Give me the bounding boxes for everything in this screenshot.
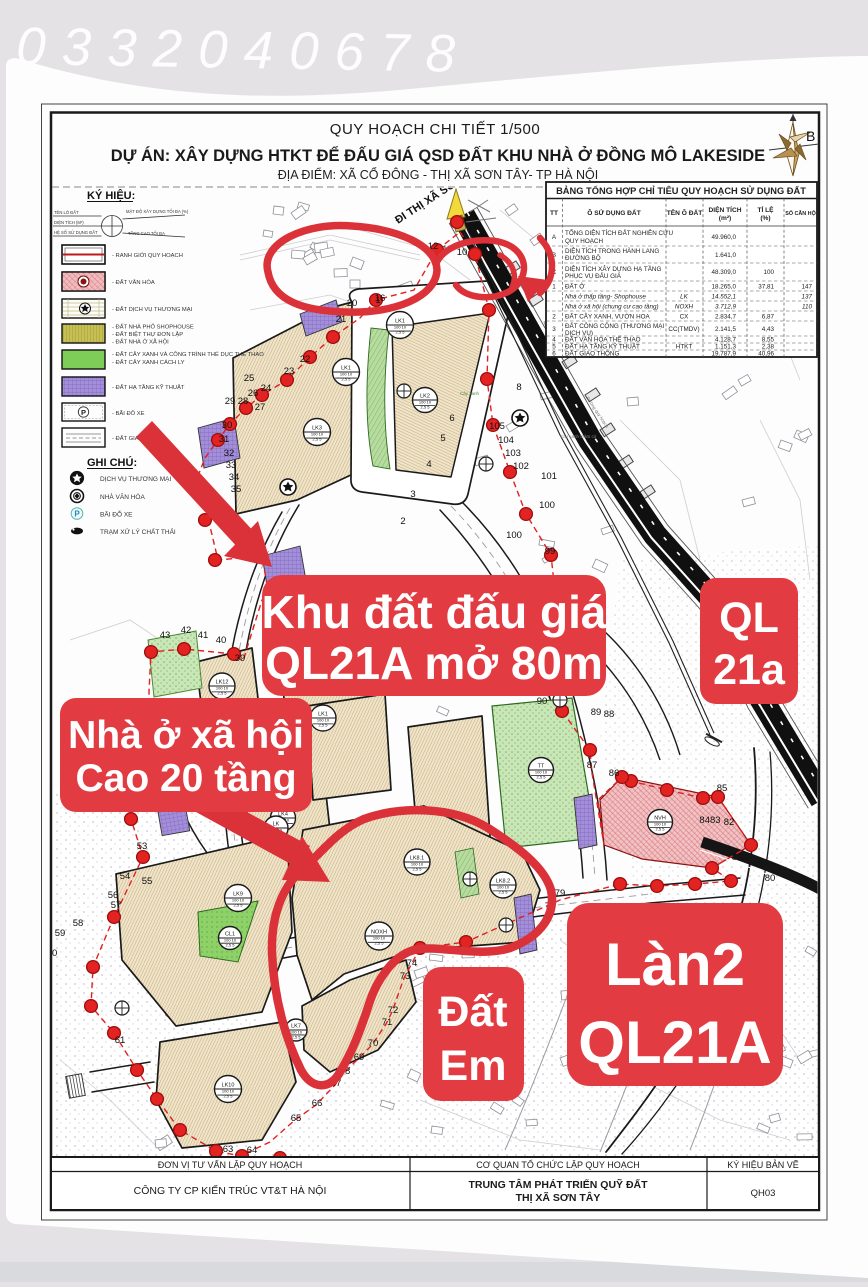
svg-text:27: 27 xyxy=(255,402,266,413)
svg-text:55: 55 xyxy=(142,876,153,887)
svg-text:HTKT: HTKT xyxy=(676,344,693,351)
svg-text:43: 43 xyxy=(160,630,171,641)
svg-text:39: 39 xyxy=(235,653,246,664)
svg-text:Nhà ở thấp tầng- Shophouse: Nhà ở thấp tầng- Shophouse xyxy=(565,292,646,301)
svg-text:5: 5 xyxy=(440,433,445,444)
svg-text:10: 10 xyxy=(457,247,468,258)
svg-text:CƠ QUAN TỔ CHỨC LẬP QUY HOẠCH: CƠ QUAN TỔ CHỨC LẬP QUY HOẠCH xyxy=(476,1159,639,1170)
svg-text:42: 42 xyxy=(181,625,192,636)
svg-text:14.552,1: 14.552,1 xyxy=(711,294,736,301)
svg-text:- ĐẤT VĂN HÓA: - ĐẤT VĂN HÓA xyxy=(112,279,155,286)
svg-text:HỆ SỐ SỬ DỤNG ĐẤT: HỆ SỐ SỬ DỤNG ĐẤT xyxy=(54,230,98,235)
svg-text:110: 110 xyxy=(802,304,813,311)
svg-text:8,55: 8,55 xyxy=(762,337,775,344)
svg-text:2,5 5: 2,5 5 xyxy=(342,377,352,382)
svg-text:2,5 5: 2,5 5 xyxy=(537,775,547,780)
svg-text:CC(TMDV): CC(TMDV) xyxy=(668,326,699,333)
svg-text:61: 61 xyxy=(115,1035,126,1046)
svg-text:THỊ XÃ SƠN TÂY: THỊ XÃ SƠN TÂY xyxy=(516,1191,601,1204)
svg-text:TỈ LỆ: TỈ LỆ xyxy=(757,205,774,214)
svg-text:100: 100 xyxy=(763,269,774,276)
svg-text:89: 89 xyxy=(591,707,602,718)
svg-text:ĐƯỜNG BỘ: ĐƯỜNG BỘ xyxy=(565,253,601,262)
svg-text:- ĐẤT CÂY XANH VÀ CÔNG TRÌNH T: - ĐẤT CÂY XANH VÀ CÔNG TRÌNH THỂ DỤC THỂ… xyxy=(112,351,264,358)
svg-text:35: 35 xyxy=(231,484,242,495)
svg-text:TẦNG CAO TỐI ĐA: TẦNG CAO TỐI ĐA xyxy=(128,231,165,236)
svg-text:41: 41 xyxy=(198,630,209,641)
svg-text:5: 5 xyxy=(552,344,556,351)
svg-text:2,5 5: 2,5 5 xyxy=(656,827,666,832)
svg-text:22: 22 xyxy=(300,354,311,365)
svg-text:4: 4 xyxy=(426,459,431,470)
svg-text:86: 86 xyxy=(609,768,620,779)
svg-text:Đất: Đất xyxy=(438,988,507,1036)
svg-text:DIỆN TÍCH: DIỆN TÍCH xyxy=(709,205,742,214)
svg-text:26: 26 xyxy=(248,388,259,399)
svg-text:- ĐẤT DỊCH VỤ THƯƠNG MẠI: - ĐẤT DỊCH VỤ THƯƠNG MẠI xyxy=(112,306,193,313)
svg-text:99: 99 xyxy=(545,546,556,557)
svg-text:59: 59 xyxy=(55,928,66,939)
svg-text:DIỆN TÍCH TRONG HÀNH LANG: DIỆN TÍCH TRONG HÀNH LANG xyxy=(565,246,659,255)
svg-text:Em: Em xyxy=(440,1042,507,1090)
svg-text:66: 66 xyxy=(312,1098,323,1109)
svg-text:90: 90 xyxy=(537,696,548,707)
svg-text:NHÀ VĂN HÓA: NHÀ VĂN HÓA xyxy=(100,492,145,501)
svg-text:100: 100 xyxy=(506,530,522,541)
svg-text:104: 104 xyxy=(498,435,514,446)
svg-text:2,5 5: 2,5 5 xyxy=(375,941,385,946)
svg-text:QUY HOẠCH: QUY HOẠCH xyxy=(565,238,603,245)
svg-text:103: 103 xyxy=(505,448,521,459)
svg-text:ĐỊA ĐIỂM: XÃ CỔ ĐÔNG - THỊ XÃ: ĐỊA ĐIỂM: XÃ CỔ ĐÔNG - THỊ XÃ SƠN TÂY- T… xyxy=(278,167,599,182)
svg-text:18.265,0: 18.265,0 xyxy=(711,284,736,291)
svg-text:79: 79 xyxy=(555,888,566,899)
svg-text:6: 6 xyxy=(449,413,454,424)
svg-text:2,38: 2,38 xyxy=(762,344,775,351)
svg-text:Làn2: Làn2 xyxy=(605,931,745,998)
svg-text:4: 4 xyxy=(552,337,556,344)
svg-text:2,5 5: 2,5 5 xyxy=(313,437,323,442)
svg-text:2: 2 xyxy=(400,516,405,527)
svg-text:TRUNG TÂM PHÁT TRIỂN QUỸ ĐẤT: TRUNG TÂM PHÁT TRIỂN QUỸ ĐẤT xyxy=(468,1178,648,1191)
svg-text:30: 30 xyxy=(222,420,233,431)
svg-text:P: P xyxy=(81,408,86,417)
svg-text:2.141,5: 2.141,5 xyxy=(715,326,737,333)
svg-text:B: B xyxy=(806,128,815,144)
svg-text:1.641,0: 1.641,0 xyxy=(715,252,737,259)
svg-text:2: 2 xyxy=(552,314,556,321)
svg-text:31: 31 xyxy=(219,434,230,445)
svg-text:88: 88 xyxy=(604,709,615,720)
svg-text:TT: TT xyxy=(550,210,558,217)
svg-text:48.309,0: 48.309,0 xyxy=(711,269,736,276)
svg-text:85: 85 xyxy=(717,783,728,794)
svg-text:0332040678: 0332040678 xyxy=(16,17,472,84)
svg-text:105: 105 xyxy=(489,421,505,432)
svg-text:KÝ HIỆU BẢN VẼ: KÝ HIỆU BẢN VẼ xyxy=(727,1159,799,1170)
svg-text:58: 58 xyxy=(73,918,84,929)
svg-text:DỰ ÁN: XÂY DỰNG HTKT ĐỂ ĐẤU GI: DỰ ÁN: XÂY DỰNG HTKT ĐỂ ĐẤU GIÁ QSD ĐẤT … xyxy=(111,146,765,165)
svg-text:LK: LK xyxy=(680,294,689,301)
svg-text:Cao 20 tầng: Cao 20 tầng xyxy=(75,757,296,800)
svg-text:23: 23 xyxy=(284,366,295,377)
svg-text:QH03: QH03 xyxy=(751,1188,776,1199)
svg-text:147: 147 xyxy=(801,284,812,291)
svg-text:53: 53 xyxy=(137,841,148,852)
svg-text:BÃI ĐỖ XE: BÃI ĐỖ XE xyxy=(100,510,133,519)
svg-text:21a: 21a xyxy=(713,646,786,694)
svg-text:BẢNG TỔNG HỢP CHỈ TIÊU QUY HOẠ: BẢNG TỔNG HỢP CHỈ TIÊU QUY HOẠCH SỬ DỤNG… xyxy=(556,185,806,196)
svg-text:QL21A mở 80m: QL21A mở 80m xyxy=(265,637,603,689)
svg-text:2.834,7: 2.834,7 xyxy=(715,314,737,321)
svg-text:Nhà ở xã hội: Nhà ở xã hội xyxy=(68,714,304,757)
svg-text:- BÃI ĐỖ XE: - BÃI ĐỖ XE xyxy=(112,410,145,417)
svg-text:2,5 5: 2,5 5 xyxy=(218,691,228,696)
svg-text:2,5 5: 2,5 5 xyxy=(421,405,431,410)
svg-text:71: 71 xyxy=(382,1017,393,1028)
svg-text:DỊCH VỤ THƯƠNG MẠI: DỊCH VỤ THƯƠNG MẠI xyxy=(100,476,172,483)
svg-text:24: 24 xyxy=(261,383,272,394)
svg-text:QL: QL xyxy=(719,594,779,642)
svg-text:73: 73 xyxy=(400,971,411,982)
svg-text:3: 3 xyxy=(552,326,556,333)
svg-text:SỐ CĂN HỘ: SỐ CĂN HỘ xyxy=(785,209,816,217)
svg-text:1: 1 xyxy=(375,295,380,306)
svg-text:NOXH: NOXH xyxy=(675,304,694,311)
svg-text:29: 29 xyxy=(225,396,236,407)
svg-text:137: 137 xyxy=(801,294,812,301)
svg-text:101: 101 xyxy=(541,471,557,482)
svg-text:63: 63 xyxy=(223,1144,234,1155)
svg-text:1.151,3: 1.151,3 xyxy=(715,344,737,351)
svg-text:KÝ HIỆU:: KÝ HIỆU: xyxy=(87,189,135,202)
svg-text:8483: 8483 xyxy=(699,815,720,826)
svg-text:64: 64 xyxy=(247,1145,258,1156)
svg-text:DIỆN TÍCH (M²): DIỆN TÍCH (M²) xyxy=(54,220,84,225)
svg-text:33: 33 xyxy=(226,460,237,471)
svg-text:2,5 5: 2,5 5 xyxy=(396,330,406,335)
svg-text:40: 40 xyxy=(216,635,227,646)
svg-text:4.128,7: 4.128,7 xyxy=(715,337,737,344)
svg-text:25: 25 xyxy=(244,373,255,384)
svg-text:2,5 5: 2,5 5 xyxy=(224,1094,234,1099)
svg-text:- ĐẤT HẠ TẦNG KỸ THUẬT: - ĐẤT HẠ TẦNG KỸ THUẬT xyxy=(112,384,185,391)
svg-text:49.960,0: 49.960,0 xyxy=(711,234,736,241)
svg-text:8: 8 xyxy=(516,382,521,393)
svg-text:6,87: 6,87 xyxy=(762,314,775,321)
svg-text:P: P xyxy=(74,510,80,519)
svg-text:20: 20 xyxy=(347,298,358,309)
svg-text:- RANH GIỚI QUY HOẠCH: - RANH GIỚI QUY HOẠCH xyxy=(112,252,183,259)
svg-text:82: 82 xyxy=(724,817,735,828)
svg-text:2,5 5: 2,5 5 xyxy=(499,890,509,895)
svg-text:Nhà ở xã hội (chung cư cao tần: Nhà ở xã hội (chung cư cao tầng) xyxy=(565,302,659,311)
svg-text:2,5 5: 2,5 5 xyxy=(234,903,244,908)
svg-text:54: 54 xyxy=(120,871,131,882)
svg-text:72: 72 xyxy=(388,1005,399,1016)
svg-text:69: 69 xyxy=(354,1052,365,1063)
svg-text:100: 100 xyxy=(539,500,555,511)
svg-text:(m²): (m²) xyxy=(719,215,731,222)
svg-text:- ĐẤT CÂY XANH CÁCH LY: - ĐẤT CÂY XANH CÁCH LY xyxy=(112,359,185,366)
svg-text:32: 32 xyxy=(224,448,235,459)
svg-text:4,43: 4,43 xyxy=(762,326,775,333)
svg-text:2,5 5: 2,5 5 xyxy=(292,1035,302,1040)
svg-text:Khu đất đấu giá: Khu đất đấu giá xyxy=(262,586,607,638)
svg-text:3.712,9: 3.712,9 xyxy=(715,304,737,311)
svg-text:- ĐẤT NHÀ PHỐ SHOPHOUSE: - ĐẤT NHÀ PHỐ SHOPHOUSE xyxy=(112,324,194,331)
svg-text:TÊN LÔ ĐẤT: TÊN LÔ ĐẤT xyxy=(54,210,79,215)
svg-text:57: 57 xyxy=(111,900,122,911)
svg-text:MẬT ĐỘ XÂY DỰNG TỐI ĐA (%): MẬT ĐỘ XÂY DỰNG TỐI ĐA (%) xyxy=(126,209,189,214)
svg-text:2,5 5: 2,5 5 xyxy=(413,867,423,872)
svg-text:74: 74 xyxy=(407,958,418,969)
svg-text:ĐƠN VỊ TƯ VẤN LẬP QUY HOẠCH: ĐƠN VỊ TƯ VẤN LẬP QUY HOẠCH xyxy=(158,1160,302,1170)
svg-text:70: 70 xyxy=(368,1038,379,1049)
svg-text:2,5 5: 2,5 5 xyxy=(319,723,329,728)
svg-text:37,81: 37,81 xyxy=(758,284,774,291)
svg-text:80: 80 xyxy=(765,873,776,884)
svg-text:28: 28 xyxy=(238,396,249,407)
svg-text:65: 65 xyxy=(291,1113,302,1124)
svg-text:Cây xanh thảm cỏ: Cây xanh thảm cỏ xyxy=(560,433,597,439)
svg-text:(%): (%) xyxy=(760,215,770,222)
svg-text:CÔNG TY CP KIẾN TRÚC VT&T HÀ N: CÔNG TY CP KIẾN TRÚC VT&T HÀ NỘI xyxy=(134,1184,327,1197)
svg-text:QUY HOẠCH CHI TIẾT 1/500: QUY HOẠCH CHI TIẾT 1/500 xyxy=(330,121,540,138)
svg-text:- ĐẤT BIỆT THỰ ĐƠN LẬP: - ĐẤT BIỆT THỰ ĐƠN LẬP xyxy=(112,330,183,338)
svg-text:19.787,9: 19.787,9 xyxy=(711,351,736,358)
svg-text:102: 102 xyxy=(513,461,529,472)
svg-text:QL21A: QL21A xyxy=(578,1009,771,1076)
svg-text:6: 6 xyxy=(552,351,556,358)
svg-text:CX: CX xyxy=(680,314,690,321)
svg-text:3: 3 xyxy=(410,489,415,500)
svg-text:81: 81 xyxy=(732,852,743,863)
svg-text:Cây xanh: Cây xanh xyxy=(460,391,480,396)
svg-text:- ĐẤT NHÀ Ở XÃ HỘI: - ĐẤT NHÀ Ở XÃ HỘI xyxy=(112,339,169,346)
svg-text:40,96: 40,96 xyxy=(758,351,774,358)
svg-text:34: 34 xyxy=(229,472,240,483)
svg-text:GHI CHÚ:: GHI CHÚ: xyxy=(87,456,137,469)
svg-text:87: 87 xyxy=(587,760,598,771)
svg-text:2,5 5: 2,5 5 xyxy=(226,943,236,948)
svg-text:1: 1 xyxy=(552,284,556,291)
